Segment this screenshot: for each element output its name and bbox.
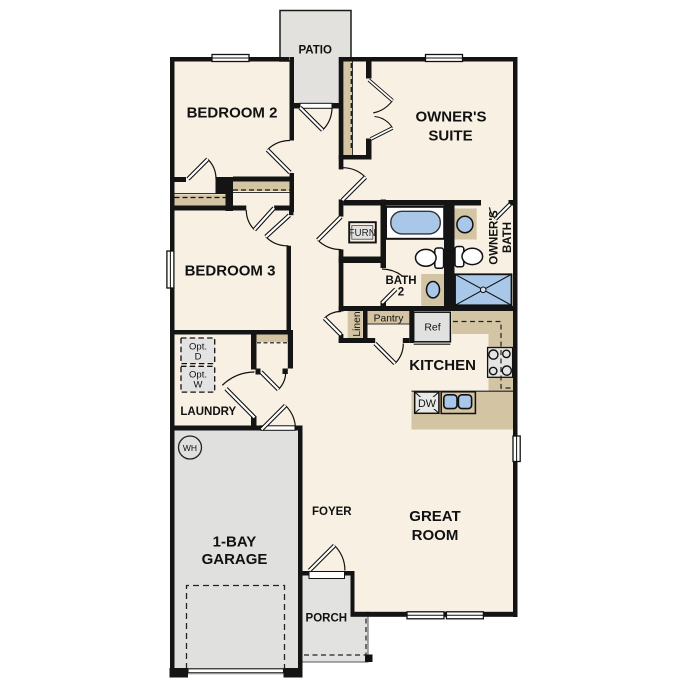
svg-text:FOYER: FOYER — [312, 506, 352, 518]
svg-text:BEDROOM 3: BEDROOM 3 — [185, 263, 276, 280]
svg-text:OWNER'S: OWNER'S — [415, 109, 486, 126]
svg-text:1-BAY: 1-BAY — [213, 534, 257, 551]
svg-text:Pantry: Pantry — [374, 314, 405, 325]
svg-text:Ref: Ref — [424, 321, 440, 333]
svg-text:PATIO: PATIO — [298, 45, 331, 57]
svg-text:FURN: FURN — [349, 228, 376, 239]
svg-text:SUITE: SUITE — [428, 127, 472, 144]
svg-text:D: D — [195, 351, 202, 362]
svg-text:WH: WH — [183, 443, 197, 453]
svg-text:BEDROOM 2: BEDROOM 2 — [187, 105, 278, 122]
svg-text:LAUNDRY: LAUNDRY — [180, 406, 236, 418]
svg-text:Linen: Linen — [352, 311, 363, 336]
svg-text:BATH: BATH — [502, 222, 514, 253]
svg-text:2: 2 — [398, 286, 404, 298]
svg-text:DW: DW — [418, 398, 437, 410]
svg-text:BATH: BATH — [385, 275, 416, 287]
svg-text:W: W — [194, 380, 203, 391]
svg-text:ROOM: ROOM — [412, 527, 459, 544]
svg-text:PORCH: PORCH — [306, 612, 348, 624]
svg-text:KITCHEN: KITCHEN — [409, 357, 476, 374]
svg-text:GREAT: GREAT — [409, 508, 460, 525]
svg-text:OWNER'S: OWNER'S — [488, 210, 500, 265]
svg-text:GARAGE: GARAGE — [202, 551, 268, 568]
